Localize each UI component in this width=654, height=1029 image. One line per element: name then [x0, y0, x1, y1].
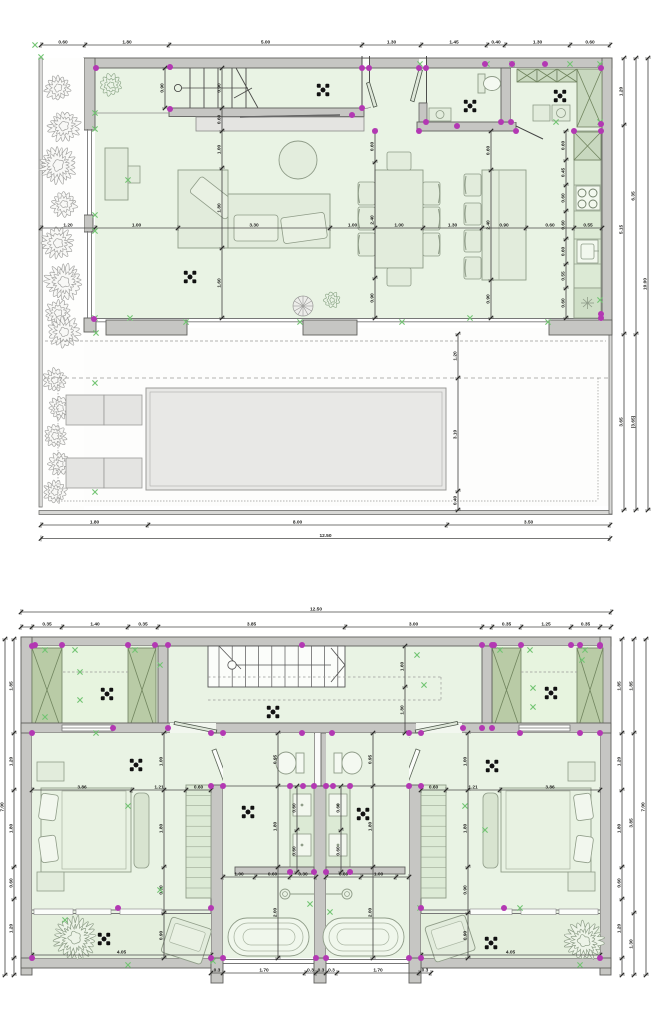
svg-text:1.60: 1.60: [400, 662, 406, 672]
svg-text:0.60: 0.60: [9, 878, 15, 888]
svg-text:0.60: 0.60: [561, 141, 567, 151]
svg-text:1.25: 1.25: [541, 621, 551, 627]
svg-text:1.00: 1.00: [348, 222, 358, 228]
svg-text:0.35: 0.35: [502, 621, 512, 627]
svg-text:3.85: 3.85: [629, 818, 635, 828]
svg-text:0.60: 0.60: [217, 115, 223, 125]
svg-text:0.60: 0.60: [545, 222, 555, 228]
svg-text:12.50: 12.50: [319, 533, 331, 539]
svg-text:0.60: 0.60: [561, 247, 567, 257]
svg-text:1.45: 1.45: [449, 39, 459, 45]
svg-text:1.21: 1.21: [468, 784, 478, 790]
svg-text:1.00: 1.00: [463, 757, 469, 767]
svg-text:0.35: 0.35: [138, 621, 148, 627]
svg-text:7.00: 7.00: [0, 802, 6, 812]
svg-text:3.10: 3.10: [453, 430, 459, 440]
svg-text:1.80: 1.80: [617, 824, 623, 834]
svg-text:0.60: 0.60: [486, 146, 492, 156]
svg-text:0.90: 0.90: [486, 294, 492, 304]
svg-text:0.60: 0.60: [429, 784, 439, 790]
svg-text:1.20: 1.20: [453, 351, 459, 361]
svg-text:7.00: 7.00: [641, 802, 647, 812]
svg-text:1.20: 1.20: [63, 222, 73, 228]
svg-text:5.00: 5.00: [261, 39, 271, 45]
svg-text:3.65: 3.65: [619, 417, 625, 427]
svg-text:0.45: 0.45: [561, 168, 567, 178]
svg-text:8.00: 8.00: [293, 519, 303, 525]
svg-text:1.80: 1.80: [400, 705, 406, 715]
svg-text:2.00: 2.00: [273, 908, 279, 918]
svg-text:0.55: 0.55: [561, 271, 567, 281]
svg-text:1.20: 1.20: [617, 757, 623, 767]
svg-text:1.80: 1.80: [90, 519, 100, 525]
svg-text:0.60: 0.60: [58, 39, 68, 45]
svg-text:0.40: 0.40: [491, 39, 501, 45]
svg-text:1.00: 1.00: [374, 871, 384, 877]
svg-text:1.30: 1.30: [448, 222, 458, 228]
svg-text:0.60: 0.60: [292, 846, 298, 856]
svg-text:3.86: 3.86: [545, 784, 555, 790]
svg-text:0.60: 0.60: [336, 803, 342, 813]
svg-text:1.60: 1.60: [217, 278, 223, 288]
svg-text:0.35: 0.35: [42, 621, 52, 627]
svg-text:0.30: 0.30: [298, 871, 308, 877]
svg-text:0.60: 0.60: [561, 298, 567, 308]
svg-text:0.60: 0.60: [585, 39, 595, 45]
svg-text:0.60: 0.60: [194, 784, 204, 790]
svg-text:1.80: 1.80: [273, 822, 279, 832]
svg-text:1.80: 1.80: [122, 39, 132, 45]
svg-text:1.80: 1.80: [463, 824, 469, 834]
svg-text:2.40: 2.40: [486, 220, 492, 230]
svg-text:0.90: 0.90: [217, 83, 223, 93]
svg-text:1.20: 1.20: [619, 87, 625, 97]
svg-text:0.95: 0.95: [368, 755, 374, 765]
svg-text:5.15: 5.15: [619, 225, 625, 235]
svg-text:1.00: 1.00: [159, 757, 165, 767]
svg-text:1.30: 1.30: [387, 39, 397, 45]
svg-text:0.35: 0.35: [581, 621, 591, 627]
svg-text:0.90: 0.90: [370, 293, 376, 303]
svg-text:0.90: 0.90: [160, 83, 166, 93]
svg-text:1.40: 1.40: [90, 621, 100, 627]
svg-text:2.40: 2.40: [370, 215, 376, 225]
svg-text:3.00: 3.00: [409, 621, 419, 627]
svg-text:1.85: 1.85: [9, 681, 15, 691]
svg-text:0.60: 0.60: [268, 871, 278, 877]
svg-text:1.80: 1.80: [368, 822, 374, 832]
svg-text:0.60: 0.60: [292, 803, 298, 813]
svg-text:1.00: 1.00: [217, 145, 223, 155]
svg-text:1.70: 1.70: [259, 967, 269, 973]
svg-text:0.3: 0.3: [214, 967, 221, 973]
svg-text:0.60: 0.60: [336, 846, 342, 856]
svg-text:1.20: 1.20: [9, 757, 15, 767]
svg-text:1.21: 1.21: [154, 784, 164, 790]
svg-text:0.3: 0.3: [307, 967, 314, 973]
svg-text:0.95: 0.95: [273, 755, 279, 765]
svg-text:2.00: 2.00: [368, 908, 374, 918]
svg-text:(3.65): (3.65): [631, 415, 637, 428]
svg-text:0.90: 0.90: [463, 931, 469, 941]
svg-text:1.70: 1.70: [373, 967, 383, 973]
svg-text:0.3: 0.3: [328, 967, 335, 973]
svg-text:1.20: 1.20: [9, 924, 15, 934]
svg-text:0.3: 0.3: [318, 967, 325, 973]
svg-text:0.40: 0.40: [453, 496, 459, 506]
svg-text:0.55: 0.55: [583, 222, 593, 228]
svg-text:1.85: 1.85: [617, 681, 623, 691]
svg-text:0.90: 0.90: [463, 885, 469, 895]
svg-text:4.05: 4.05: [117, 949, 127, 955]
svg-text:3.86: 3.86: [77, 784, 87, 790]
svg-text:1.00: 1.00: [132, 222, 142, 228]
svg-text:0.60: 0.60: [617, 878, 623, 888]
svg-text:1.20: 1.20: [617, 924, 623, 934]
svg-text:1.80: 1.80: [217, 203, 223, 213]
svg-text:1.80: 1.80: [9, 824, 15, 834]
svg-text:0.60: 0.60: [370, 142, 376, 152]
svg-text:12.50: 12.50: [310, 606, 322, 612]
svg-text:1.30: 1.30: [629, 939, 635, 949]
svg-text:4.05: 4.05: [506, 949, 516, 955]
svg-text:3.50: 3.50: [524, 519, 534, 525]
svg-text:1.30: 1.30: [533, 39, 543, 45]
svg-text:1.85: 1.85: [629, 681, 635, 691]
svg-text:10.00: 10.00: [643, 278, 649, 290]
svg-text:3.30: 3.30: [249, 222, 259, 228]
svg-text:3.85: 3.85: [247, 621, 257, 627]
svg-text:1.80: 1.80: [159, 824, 165, 834]
svg-text:0.3: 0.3: [422, 967, 429, 973]
svg-text:0.90: 0.90: [499, 222, 509, 228]
svg-text:1.00: 1.00: [234, 871, 244, 877]
svg-text:0.90: 0.90: [159, 931, 165, 941]
svg-text:0.60: 0.60: [561, 220, 567, 230]
svg-text:6.35: 6.35: [631, 191, 637, 201]
svg-text:1.00: 1.00: [394, 222, 404, 228]
svg-text:0.60: 0.60: [561, 193, 567, 203]
